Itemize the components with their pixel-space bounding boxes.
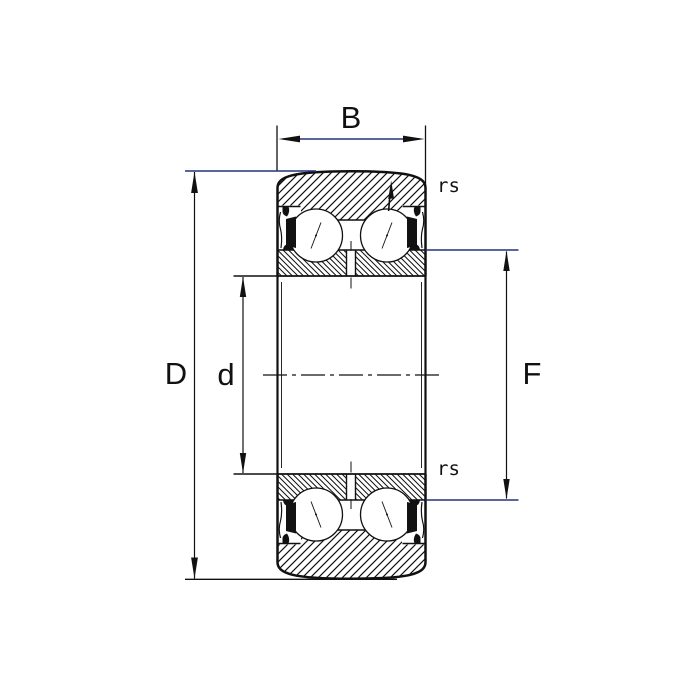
b-arrow-right (403, 136, 425, 143)
label-rs-bottom: rs (437, 458, 460, 480)
b-arrow-left (279, 136, 301, 143)
f-arrow-bottom (503, 479, 509, 499)
seal-body (286, 217, 296, 249)
d-bore-arrow-top (240, 277, 246, 297)
diagram-canvas: B D d F rs rs (0, 0, 700, 700)
label-rib-F: F (523, 356, 542, 391)
label-rs-top: rs (437, 175, 460, 197)
d-outer-arrow-top (191, 172, 198, 193)
f-arrow-top (503, 251, 509, 271)
label-bore-d: d (217, 357, 234, 392)
ball-right (366, 214, 409, 257)
label-outer-diameter-D: D (165, 356, 187, 391)
label-width-B: B (341, 100, 362, 135)
ball-left (295, 214, 338, 257)
d-outer-arrow-bottom (191, 558, 198, 579)
d-bore-arrow-bottom (240, 453, 246, 473)
diagram-page: B D d F rs rs (0, 0, 700, 700)
